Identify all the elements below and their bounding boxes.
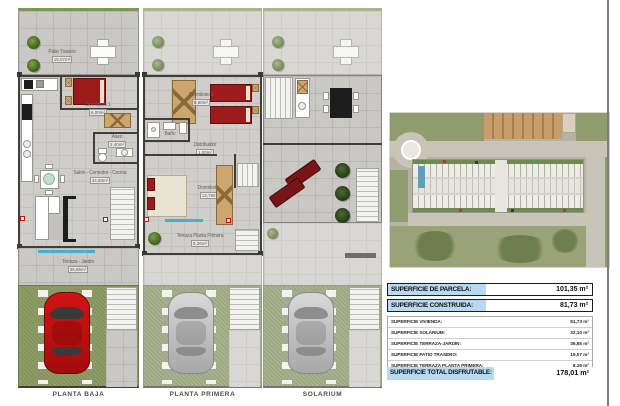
windshield <box>294 307 327 320</box>
pool <box>418 166 425 188</box>
entry-steps <box>349 287 380 330</box>
bed-double <box>73 78 106 105</box>
plant-icon <box>27 36 40 49</box>
wall <box>234 154 236 188</box>
rear-window <box>176 347 206 357</box>
utility-marker <box>103 217 108 222</box>
stairwell-below <box>235 229 259 251</box>
plan-title-planta-baja: PLANTA BAJA <box>18 391 139 398</box>
table-row-total: SUPERFICIE TOTAL DISFRUTABLE: 178,01 m² <box>387 367 593 380</box>
car-roof <box>176 321 207 345</box>
townhouse-block <box>412 159 584 213</box>
row-label: SUPERFICIE TOTAL DISFRUTABLE: <box>387 367 494 380</box>
wall <box>145 154 217 156</box>
utility-marker <box>226 218 231 223</box>
plant-icon <box>335 163 350 178</box>
car-dot <box>459 209 462 212</box>
sink-icon <box>23 140 31 148</box>
plant-icon <box>152 36 164 48</box>
row-label: SUPERFICIE DE PARCELA: <box>388 284 486 295</box>
buildings-top <box>484 113 562 139</box>
floorplan-planta-baja: Patio Trasero 19,07m² Dormitorio 1 6,00m… <box>18 8 139 388</box>
storage-box <box>104 113 131 128</box>
wardrobe <box>216 165 233 225</box>
pillow <box>246 86 250 100</box>
row-label: SUPERFICIE CONSTRUIDA: <box>388 300 486 311</box>
table-row-parcela: SUPERFICIE DE PARCELA: 101,35 m² <box>387 283 593 296</box>
terrace-below <box>143 255 262 285</box>
row-value: 19,07 m² <box>570 350 589 360</box>
room-area: 36,85m² <box>68 266 89 273</box>
chair <box>34 175 39 183</box>
wall <box>188 118 190 142</box>
tv-arm <box>63 196 76 199</box>
side-path <box>349 330 380 387</box>
plant-icon <box>148 232 161 245</box>
rear-window <box>296 347 326 357</box>
plan-title-planta-primera: PLANTA PRIMERA <box>143 391 262 398</box>
chair <box>45 164 53 169</box>
stove-icon <box>24 80 33 89</box>
wall <box>93 162 139 164</box>
wall <box>93 132 95 164</box>
table-top <box>43 173 55 185</box>
oven-icon <box>22 104 32 120</box>
room-area: 8,26m² <box>191 240 209 247</box>
column <box>142 72 147 77</box>
room-name: Terraza - Jardín <box>40 260 116 265</box>
drain <box>151 127 156 132</box>
stair-landing <box>265 77 293 119</box>
tv-arm <box>63 239 76 242</box>
table-part <box>213 46 239 58</box>
car-dot <box>443 160 446 163</box>
nightstand <box>65 78 72 87</box>
room-name: Aseo <box>98 135 136 140</box>
row-label: SUPERFICIE VIVIENDA: <box>391 317 442 327</box>
column <box>17 72 22 77</box>
washbasin-icon <box>163 122 176 130</box>
toilet-icon <box>98 153 107 162</box>
floorplan-solarium <box>263 8 382 388</box>
row-value: 36,85 m² <box>570 339 589 349</box>
green-area <box>390 170 408 222</box>
room-name: Dormitorio 1 <box>76 103 120 108</box>
room-label-bano: Baño <box>157 132 183 137</box>
room-label-dorm2: Dormitorio 2 8,60m² <box>181 93 221 106</box>
chair <box>353 92 359 100</box>
column <box>135 72 140 77</box>
patio-table <box>213 39 239 65</box>
room-label-salon: Salón - Comedor - Cocina 34,50m² <box>64 171 136 184</box>
car-dot <box>511 209 514 212</box>
pergola-shadow <box>345 253 376 258</box>
sofa-chaise <box>48 196 60 214</box>
utility-marker <box>144 217 149 222</box>
pillow <box>246 108 250 122</box>
field-texture <box>410 231 460 261</box>
room-label-terraza: Terraza - Jardín 36,85m² <box>40 260 116 273</box>
nightstand <box>65 96 72 105</box>
table-row-vivienda: SUPERFICIE VIVIENDA: 81,73 m² <box>388 317 592 328</box>
car-red <box>44 292 90 374</box>
staircase <box>356 168 379 222</box>
side-path <box>229 330 260 387</box>
room-area: 19,07m² <box>52 56 73 63</box>
room-name: Baño <box>157 132 183 137</box>
roundabout-island <box>401 140 421 160</box>
side-path <box>106 330 137 387</box>
row-value: 101,35 m² <box>556 284 588 295</box>
chair <box>353 105 359 113</box>
outdoor-table <box>330 88 352 118</box>
table-row-patio-trasero: SUPERFICIE PATIO TRASERO: 19,07 m² <box>388 350 592 361</box>
wall <box>145 118 190 120</box>
chair <box>323 105 329 113</box>
room-area: 2,40m² <box>108 141 126 148</box>
building <box>562 113 576 133</box>
sink-icon <box>23 150 31 158</box>
room-name: Terraza Planta Primera <box>167 234 233 239</box>
room-label-terraza-p1: Terraza Planta Primera 8,26m² <box>167 234 233 247</box>
table-part <box>333 46 359 58</box>
car-roof <box>52 321 83 345</box>
windshield <box>174 307 207 320</box>
water-feature <box>165 219 203 222</box>
table-row-construida: SUPERFICIE CONSTRUIDA: 81,73 m² <box>387 299 593 312</box>
sink-icon <box>298 102 306 110</box>
room-name: Salón - Comedor - Cocina <box>64 171 136 176</box>
row-label: SUPERFICIE TERRAZA-JARDÍN: <box>391 339 461 349</box>
entry-steps <box>229 287 260 330</box>
green-area <box>576 113 610 143</box>
row-label: SUPERFICIE PATIO TRASERO: <box>391 350 457 360</box>
plant-icon <box>335 208 350 223</box>
room-area: 8,60m² <box>192 99 210 106</box>
water-feature <box>38 250 95 253</box>
car-gray <box>288 292 334 374</box>
room-name: Patio Trasero <box>36 50 88 55</box>
car-roof <box>296 321 327 345</box>
plant-icon <box>267 228 278 239</box>
table-row-solarium: SUPERFICIE SOLARIUM: 32,10 m² <box>388 328 592 339</box>
patio-table <box>333 39 359 65</box>
row-value: 32,10 m² <box>570 328 589 338</box>
room-area: 34,50m² <box>90 177 111 184</box>
car-dot <box>563 209 566 212</box>
nightstand <box>252 106 259 114</box>
windshield <box>50 307 83 320</box>
plant-icon <box>152 59 164 71</box>
field-texture <box>490 235 550 263</box>
plant-icon <box>335 186 350 201</box>
bed-single <box>210 106 252 124</box>
staircase <box>237 163 259 187</box>
staircase <box>110 187 135 240</box>
row-label: SUPERFICIE SOLARIUM: <box>391 328 445 338</box>
nightstand <box>252 84 259 92</box>
site-aerial-photo <box>389 112 610 268</box>
room-name: Distribuidor <box>187 143 223 148</box>
car-dot <box>533 160 536 163</box>
car-gray <box>168 292 214 374</box>
room-label-patio: Patio Trasero 19,07m² <box>36 50 88 63</box>
headboard-cushion <box>147 197 155 210</box>
sofa <box>35 196 49 240</box>
entry-steps <box>106 287 137 330</box>
tv-unit <box>63 196 68 242</box>
floorplan-sheet: Patio Trasero 19,07m² Dormitorio 1 6,00m… <box>0 0 620 406</box>
row-value: 178,01 m² <box>556 367 589 380</box>
page-border <box>607 0 609 406</box>
chair <box>45 190 53 195</box>
row-value: 81,73 m² <box>560 300 588 311</box>
row-value: 81,73 m² <box>570 317 589 327</box>
outdoor-cabinet <box>297 80 308 94</box>
floorplan-planta-primera: Dormitorio 2 8,60m² Baño Distribuidor 1,… <box>143 8 262 388</box>
wall <box>145 140 190 142</box>
pillow <box>100 80 104 103</box>
road-vertical <box>586 141 605 268</box>
field-texture <box>550 229 580 253</box>
headboard-cushion <box>147 178 155 191</box>
utility-marker <box>20 216 25 221</box>
wall <box>60 75 62 108</box>
table-row-terraza-jardin: SUPERFICIE TERRAZA-JARDÍN: 36,85 m² <box>388 339 592 350</box>
chair <box>323 92 329 100</box>
basin-bowl <box>121 149 128 156</box>
appliance-icon <box>36 80 44 88</box>
rear-window <box>52 347 82 357</box>
table-detail-block: SUPERFICIE VIVIENDA: 81,73 m² SUPERFICIE… <box>387 316 593 372</box>
plan-title-solarium: SOLARIUM <box>263 391 382 398</box>
room-name: Dormitorio 2 <box>181 93 221 98</box>
table-part <box>90 46 116 58</box>
central-path <box>495 160 507 212</box>
car-dot <box>475 161 478 164</box>
patio-table <box>90 39 116 65</box>
road-horizontal <box>408 213 586 226</box>
plant-icon <box>272 36 284 48</box>
wall <box>263 143 382 145</box>
plant-icon <box>272 59 284 71</box>
room-label-aseo: Aseo 2,40m² <box>98 135 136 148</box>
